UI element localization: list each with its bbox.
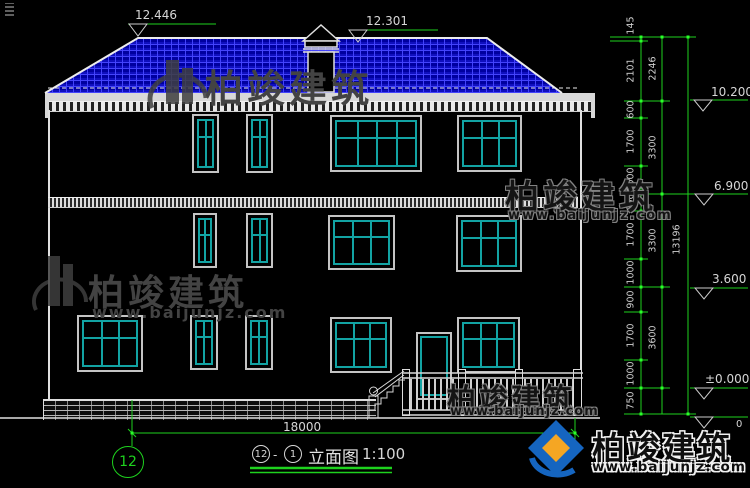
- dim-chain: 750: [626, 383, 637, 419]
- watermark-logo-top: [150, 60, 206, 108]
- dim-group: 3300: [648, 130, 659, 166]
- title-axis-right-circle: 1: [284, 445, 302, 463]
- elev-floor3: 6.900: [714, 179, 748, 193]
- dim-group: 3600: [648, 320, 659, 356]
- axis-bubble-12: 12: [112, 446, 144, 478]
- title-separator: -: [273, 448, 277, 462]
- drawing-scale: 1:100: [362, 445, 405, 463]
- dim-chain: 2101: [626, 53, 637, 89]
- elev-roof-secondary: 12.301: [366, 14, 408, 28]
- watermark-logo-left: [34, 256, 86, 310]
- dim-chain: 1700: [626, 318, 637, 354]
- dim-chain: 900: [626, 282, 637, 318]
- elev-ridge: 12.446: [135, 8, 177, 22]
- elev-ground: ±0.000: [705, 372, 749, 386]
- logo-url-text: www.baijunjz.com: [592, 459, 746, 475]
- dim-group: 3300: [648, 223, 659, 259]
- dim-overall-width: 18000: [283, 420, 321, 434]
- elev-floor2: 3.600: [712, 272, 746, 286]
- dim-chain: 145: [626, 8, 637, 44]
- watermark-url-left: www.baijunjz.com: [92, 303, 287, 322]
- cad-elevation-drawing: 12.446 12.301 10.200 6.900 3.600 ±0.000 …: [0, 0, 750, 488]
- watermark-url-stairs: www.baijunjz.com: [450, 404, 599, 419]
- dim-group: 2246: [648, 51, 659, 87]
- watermark-url-right: www.baijunjz.com: [508, 208, 673, 223]
- baijun-logo: [528, 420, 584, 476]
- elev-eave: 10.200: [711, 85, 750, 99]
- linework-layer: [0, 0, 750, 488]
- title-axis-left-circle: 12: [252, 445, 270, 463]
- elev-basement-partial: 0: [736, 419, 742, 430]
- watermark-brand-top: 柏竣建筑: [205, 58, 373, 113]
- drawing-title: 立面图: [308, 443, 359, 468]
- dim-total: 13196: [672, 218, 683, 262]
- entry-stairs: [369, 371, 405, 418]
- dim-chain: 600: [626, 92, 637, 128]
- dim-chain: 1700: [626, 124, 637, 160]
